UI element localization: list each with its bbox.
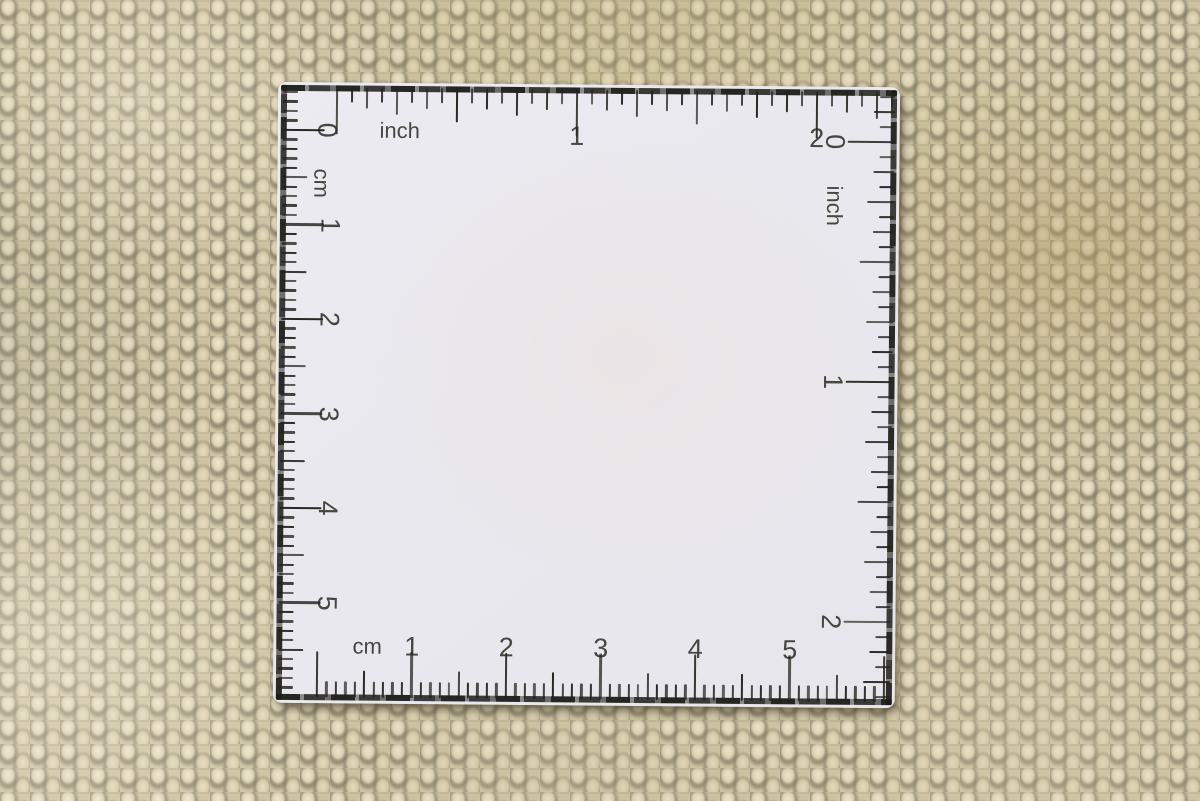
ruler-tick xyxy=(826,686,829,702)
cm-number-label: 4 xyxy=(688,636,703,663)
cm-number-label: 1 xyxy=(404,633,419,660)
ruler-tick xyxy=(684,684,687,700)
ruler-tick xyxy=(334,681,337,697)
ruler-tick xyxy=(741,674,744,701)
ruler-tick xyxy=(845,686,848,702)
ruler-tick xyxy=(750,685,753,701)
ruler-tick xyxy=(609,684,612,700)
ruler-tick xyxy=(382,682,385,698)
ruler-tick xyxy=(344,681,347,697)
ruler-tick xyxy=(571,683,574,699)
ruler-tick xyxy=(486,683,489,699)
ruler-tick xyxy=(618,684,621,700)
ruler-tick xyxy=(438,682,441,698)
ruler-tick xyxy=(807,685,810,701)
ruler-card: inch 12 0 cm 12345 inch 012 cm 12345 xyxy=(273,82,900,708)
cm-number-label: 5 xyxy=(782,637,797,664)
ruler-tick xyxy=(457,671,460,698)
ruler-tick xyxy=(542,683,545,699)
ruler-tick xyxy=(495,683,498,699)
ruler-tick xyxy=(864,686,867,702)
ruler-tick xyxy=(675,684,678,700)
ruler-tick xyxy=(712,685,715,701)
ruler-tick xyxy=(514,683,517,699)
ruler-tick xyxy=(448,682,451,698)
ruler-tick xyxy=(703,685,706,701)
bottom-cm-unit-label: cm xyxy=(352,635,382,657)
ruler-tick xyxy=(429,682,432,698)
ruler-tick xyxy=(637,684,640,700)
ruler-tick xyxy=(353,682,356,698)
ruler-tick xyxy=(873,686,876,702)
ruler-tick xyxy=(731,685,734,701)
ruler-tick xyxy=(854,686,857,702)
ruler-tick xyxy=(580,683,583,699)
ruler-tick xyxy=(590,684,593,700)
ruler-tick xyxy=(325,681,328,697)
ruler-tick xyxy=(363,671,366,698)
ruler-tick xyxy=(760,685,763,701)
ruler-tick xyxy=(816,686,819,702)
ruler-tick xyxy=(656,684,659,700)
ruler-tick xyxy=(523,683,526,699)
ruler-tick xyxy=(372,682,375,698)
ruler-tick xyxy=(646,673,649,700)
ruler-tick xyxy=(769,685,772,701)
ruler-tick xyxy=(552,672,555,699)
ruler-tick xyxy=(722,685,725,701)
bottom-cm-scale: cm 12345 xyxy=(273,82,900,708)
ruler-tick xyxy=(391,682,394,698)
ruler-tick xyxy=(798,685,801,701)
ruler-tick xyxy=(665,684,668,700)
ruler-tick xyxy=(467,682,470,698)
cm-number-label: 2 xyxy=(499,634,514,661)
cm-number-label: 3 xyxy=(593,635,608,662)
ruler-tick xyxy=(420,682,423,698)
ruler-tick xyxy=(401,682,404,698)
ruler-tick xyxy=(627,684,630,700)
ruler-tick xyxy=(779,685,782,701)
ruler-tick xyxy=(533,683,536,699)
ruler-tick xyxy=(835,675,838,702)
ruler-tick xyxy=(316,651,319,697)
ruler-tick xyxy=(476,683,479,699)
ruler-tick xyxy=(883,656,886,702)
carpet-background: inch 12 0 cm 12345 inch 012 cm 12345 xyxy=(0,0,1200,801)
ruler-tick xyxy=(561,683,564,699)
